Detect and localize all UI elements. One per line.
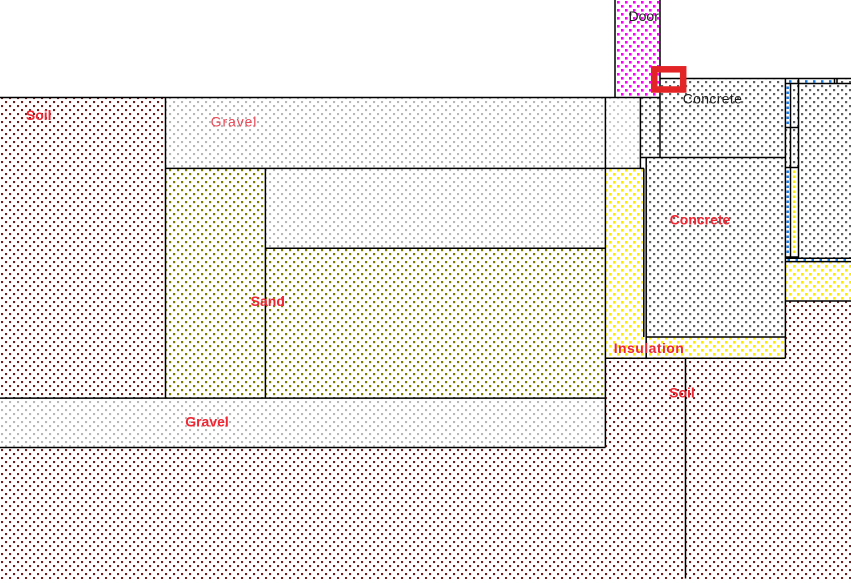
svg-text:Door: Door bbox=[629, 8, 660, 24]
svg-text:Soil: Soil bbox=[669, 385, 695, 401]
svg-text:Soil: Soil bbox=[26, 107, 52, 123]
svg-text:Gravel: Gravel bbox=[211, 114, 258, 130]
svg-text:Gravel: Gravel bbox=[185, 413, 229, 429]
svg-text:Sand: Sand bbox=[251, 293, 285, 309]
svg-text:Concrete: Concrete bbox=[670, 212, 731, 228]
svg-text:Concrete: Concrete bbox=[683, 91, 743, 107]
svg-text:Insulation: Insulation bbox=[614, 340, 685, 356]
